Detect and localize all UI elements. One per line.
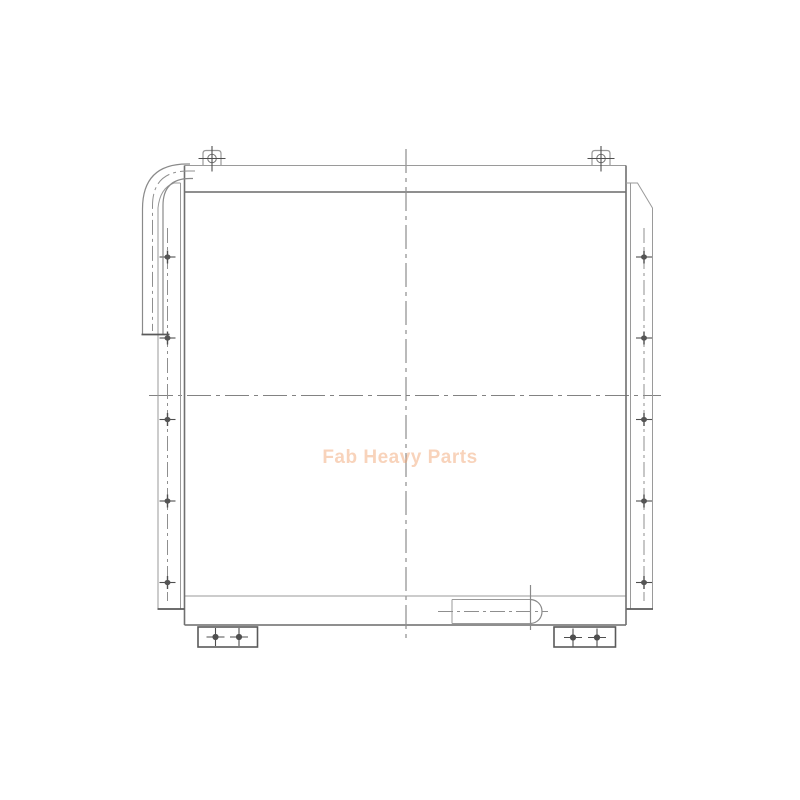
rivet xyxy=(636,576,652,589)
outlet-port xyxy=(438,585,548,630)
foot-bolt-cross xyxy=(230,628,248,646)
rivet xyxy=(160,495,176,508)
right-foot xyxy=(554,627,616,647)
rivet xyxy=(636,332,652,345)
inlet-pipe xyxy=(142,164,196,335)
right-lug xyxy=(588,146,615,172)
rivet xyxy=(636,413,652,426)
foot-bolt-cross xyxy=(564,629,582,647)
rivet xyxy=(636,251,652,264)
rivet xyxy=(160,413,176,426)
mounting-feet xyxy=(198,627,616,647)
main-centerlines xyxy=(149,149,661,642)
rivet xyxy=(160,251,176,264)
rivet xyxy=(160,576,176,589)
foot-bolt-cross xyxy=(207,628,225,646)
rivet xyxy=(636,495,652,508)
product-image-canvas: Fab Heavy Parts xyxy=(0,0,800,800)
pipe-centerline xyxy=(153,171,196,331)
foot-bolt-cross xyxy=(588,629,606,647)
rivet xyxy=(160,332,176,345)
left-lug xyxy=(199,146,226,172)
cooler-technical-drawing xyxy=(0,0,800,800)
